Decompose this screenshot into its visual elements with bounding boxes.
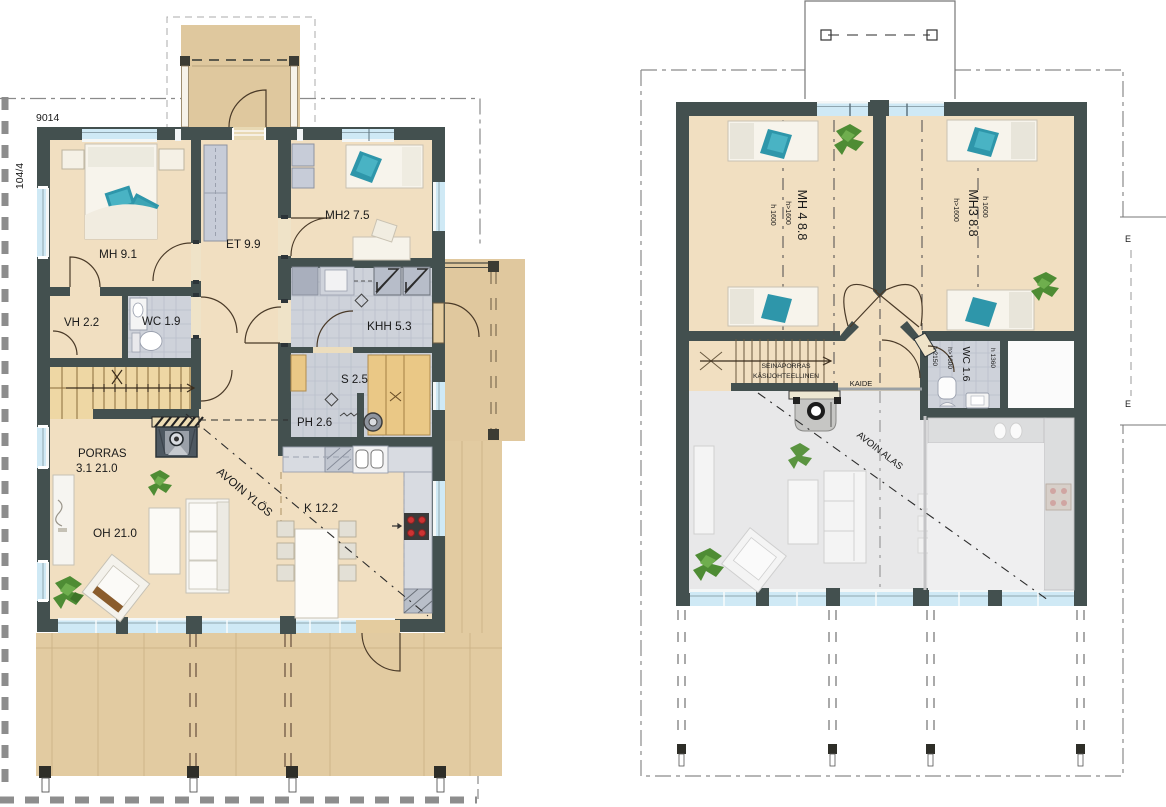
svg-text:WC 1.6: WC 1.6 xyxy=(960,346,972,381)
svg-text:MH2 7.5: MH2 7.5 xyxy=(325,208,370,222)
svg-text:PORRAS: PORRAS xyxy=(78,448,127,460)
svg-text:VH 2.2: VH 2.2 xyxy=(64,317,99,329)
svg-text:KHH 5.3: KHH 5.3 xyxy=(367,319,412,333)
svg-text:MH 4 8.8: MH 4 8.8 xyxy=(795,190,809,241)
svg-text:9014: 9014 xyxy=(36,112,60,124)
svg-text:WC 1.9: WC 1.9 xyxy=(142,316,180,328)
svg-text:K 12.2: K 12.2 xyxy=(304,501,338,515)
svg-text:KÄSIJOHTEELLINEN: KÄSIJOHTEELLINEN xyxy=(753,372,819,380)
svg-text:h>1600: h>1600 xyxy=(784,201,791,225)
svg-text:E: E xyxy=(1125,399,1131,409)
svg-text:ET 9.9: ET 9.9 xyxy=(226,237,261,251)
svg-text:MH 9.1: MH 9.1 xyxy=(99,247,137,261)
svg-text:MH3 8.8: MH3 8.8 xyxy=(966,189,980,236)
svg-text:h>1600: h>1600 xyxy=(952,198,959,222)
svg-text:OH 21.0: OH 21.0 xyxy=(93,526,137,540)
svg-text:PH 2.6: PH 2.6 xyxy=(297,417,332,429)
svg-text:SEINÄPORRAS: SEINÄPORRAS xyxy=(761,362,811,370)
svg-text:E: E xyxy=(1125,234,1131,244)
svg-text:KAIDE: KAIDE xyxy=(850,379,873,388)
svg-text:h>1600: h>1600 xyxy=(946,347,953,369)
svg-text:h 1600: h 1600 xyxy=(769,204,776,226)
svg-text:3.1 21.0: 3.1 21.0 xyxy=(76,463,118,475)
svg-text:h 2150: h 2150 xyxy=(931,346,938,366)
svg-text:h 1360: h 1360 xyxy=(989,348,996,368)
svg-text:S 2.5: S 2.5 xyxy=(341,374,368,386)
svg-text:h 1600: h 1600 xyxy=(981,196,988,218)
svg-text:104/4: 104/4 xyxy=(14,163,26,189)
